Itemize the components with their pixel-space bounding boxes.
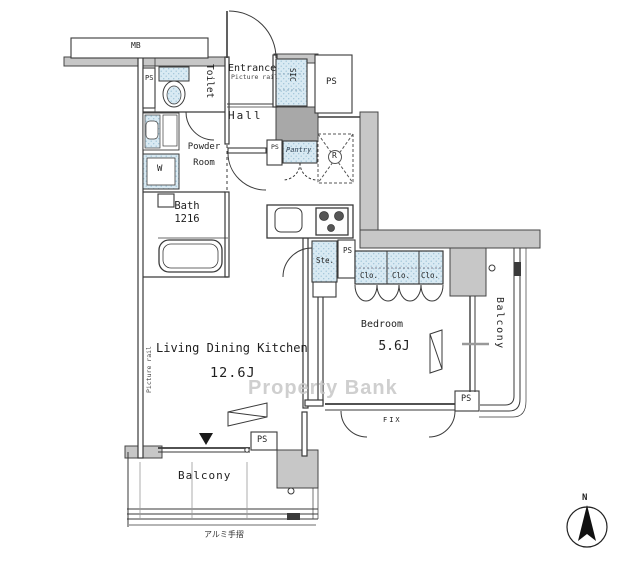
compass-icon bbox=[567, 505, 607, 547]
fix-window-label: FIX bbox=[383, 417, 402, 425]
storage-door bbox=[313, 282, 336, 297]
room-label-ldk: Living Dining Kitchen bbox=[156, 342, 306, 355]
ldk-door-leaf bbox=[228, 148, 266, 153]
room-label-balcony-right: Balcony bbox=[494, 297, 505, 350]
ldk-door-arc bbox=[228, 153, 266, 190]
wall-below-bedroom bbox=[302, 412, 307, 456]
wall-bedroom-sw-jog bbox=[305, 400, 323, 406]
pantry-door-arc-right bbox=[300, 163, 317, 180]
ps-label-top: PS bbox=[326, 78, 337, 88]
closet-label-1: Clo. bbox=[360, 272, 378, 280]
compass-north-label: N bbox=[582, 494, 587, 504]
room-size-bedroom: 5.6J bbox=[368, 340, 420, 354]
ldk-picture-rail-label: Picture rail bbox=[146, 346, 153, 393]
wall-left bbox=[138, 57, 143, 458]
kitchen-counter bbox=[267, 205, 353, 238]
pantry-label: Pantry bbox=[286, 147, 311, 155]
vanity-unit bbox=[143, 113, 179, 150]
sic-label: SIC bbox=[288, 68, 296, 82]
watermark: Property Bank bbox=[248, 377, 398, 400]
bedroom-casement-left bbox=[341, 411, 367, 437]
floor-plan-linework bbox=[0, 0, 640, 569]
room-label-bath: Bath 1216 bbox=[162, 200, 212, 225]
burner bbox=[328, 225, 335, 232]
bathtub bbox=[159, 240, 222, 272]
ps-label-balcony: PS bbox=[461, 395, 471, 404]
storage-label: Ste. bbox=[316, 257, 334, 265]
room-label-bedroom: Bedroom bbox=[352, 319, 412, 330]
wall-balcony-bottom-block bbox=[277, 450, 318, 488]
drain bbox=[489, 265, 495, 271]
closet-label-3: Clo. bbox=[421, 272, 439, 280]
drain bbox=[288, 488, 294, 494]
entrance-door-arc bbox=[229, 11, 276, 58]
downpipe bbox=[287, 513, 300, 520]
shoe-closet bbox=[276, 59, 307, 106]
entrance-picture-rail-label: Picture rail bbox=[231, 74, 278, 81]
burner bbox=[320, 212, 329, 221]
pantry-door-arc-left bbox=[283, 163, 300, 180]
handrail-caption: アルミ手摺 bbox=[204, 531, 244, 540]
toilet-fixture bbox=[159, 67, 189, 107]
kitchen-sink bbox=[275, 208, 302, 232]
ps-label-left: PS bbox=[145, 74, 151, 83]
room-label-toilet: Toilet bbox=[204, 64, 214, 98]
wall-bath-east bbox=[225, 192, 229, 277]
burner bbox=[335, 212, 344, 221]
room-size-ldk: 12.6J bbox=[210, 366, 256, 381]
closet-door-arc bbox=[399, 285, 421, 301]
closet-door-arc bbox=[377, 285, 399, 301]
room-label-balcony-bottom: Balcony bbox=[178, 470, 231, 482]
toilet-door-arc bbox=[186, 112, 214, 140]
ps-label-ldk: PS bbox=[257, 436, 267, 445]
room-label-powder-room: Powder Room bbox=[180, 139, 228, 171]
ps-label-kitchen: PS bbox=[343, 246, 350, 255]
fridge-label: R bbox=[332, 152, 337, 161]
room-label-hall: Hall bbox=[228, 110, 263, 122]
wall-entry-column bbox=[276, 107, 318, 141]
wall-balcony-right-block bbox=[450, 248, 486, 296]
closet-door-arc bbox=[355, 285, 377, 301]
floor-plan: Property Bank MB PS PS Entrance Picture … bbox=[0, 0, 640, 569]
ps-label-hall: PS bbox=[271, 143, 277, 151]
window-marker-triangle bbox=[199, 433, 213, 445]
wall-kitchen-east bbox=[360, 112, 378, 236]
downpipe bbox=[514, 262, 521, 276]
bedroom-casement-right bbox=[429, 411, 455, 437]
washer-label: W bbox=[157, 165, 162, 175]
meter-box-label: MB bbox=[131, 42, 141, 51]
closet-door-arc bbox=[421, 285, 443, 301]
wall-bedroom-north bbox=[360, 230, 540, 248]
closet-label-2: Clo. bbox=[392, 272, 410, 280]
